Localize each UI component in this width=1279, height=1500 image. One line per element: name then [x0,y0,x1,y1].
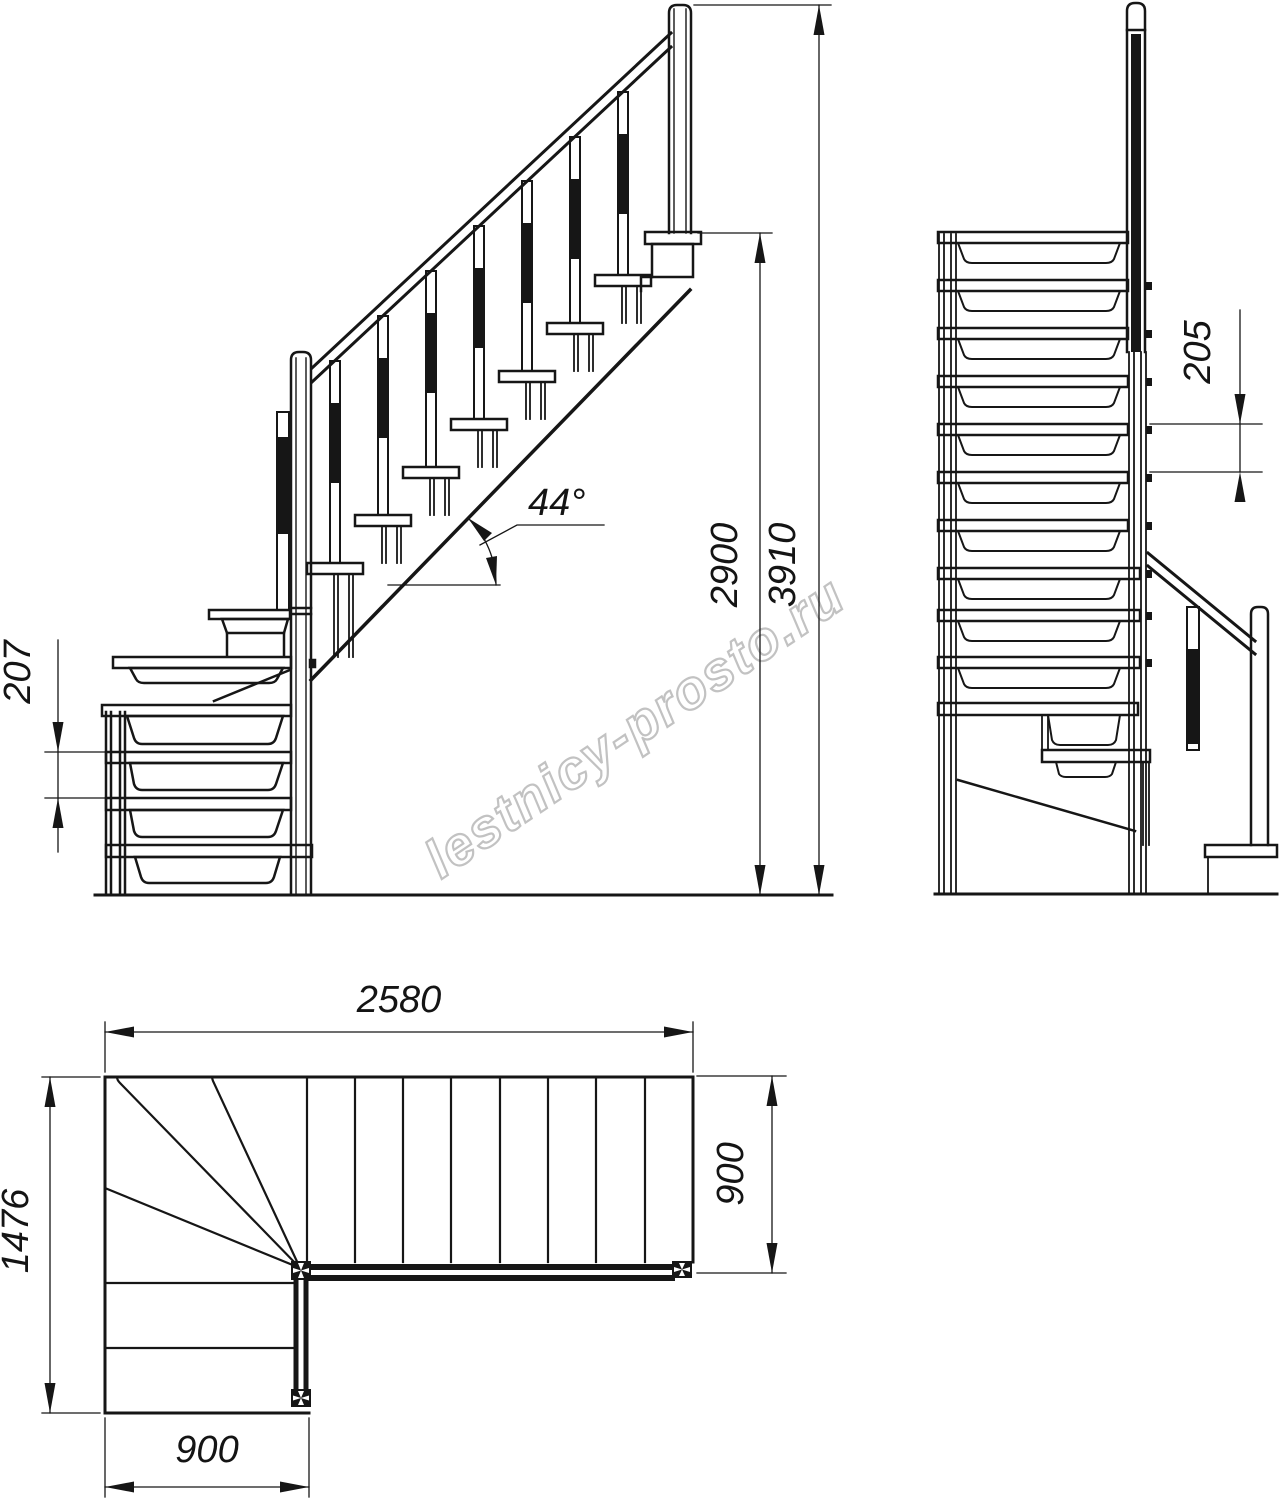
label-total-width: 1476 [0,1188,37,1273]
label-total-run: 2580 [356,979,442,1021]
upper-flight [307,232,701,680]
step-tread [451,419,507,430]
top-post [669,5,691,233]
plan-view [42,1022,786,1497]
label-floor-height: 2900 [704,523,746,609]
staircase-drawing: lestnicy-prosto.ru [0,0,1279,1500]
side-elevation-view [45,5,832,895]
label-riser-front: 205 [1177,319,1219,384]
front-steps [958,715,1277,893]
step-tread [355,515,411,526]
watermark-text: lestnicy-prosto.ru [414,565,856,890]
label-upper-width: 900 [710,1142,752,1205]
step-tread [113,657,291,668]
step-tread [307,563,363,574]
step-tread [209,610,290,619]
plan-treads [307,1077,645,1262]
front-elevation-view [935,3,1277,894]
step-tread [499,371,555,382]
lower-flight [102,610,315,895]
step-tread [106,752,291,763]
blueprint-page: lestnicy-prosto.ru [0,0,1279,1500]
dim-angle [388,518,604,585]
front-trays [958,243,1120,745]
plan-winder-fan [105,1077,300,1348]
label-angle: 44° [528,482,585,524]
step-tread [403,467,459,478]
dim-riser-side [45,640,105,852]
front-right-post [1251,607,1268,845]
dim-total-height [694,5,831,895]
front-post [1127,3,1146,893]
label-riser-side: 207 [0,638,39,704]
step-tread [106,798,291,810]
front-lower-rail [1148,553,1255,654]
newel-post [291,352,311,895]
step-tread [102,705,291,716]
stringer [311,290,690,680]
dim-total-width [42,1077,100,1413]
step-tread [106,845,312,857]
label-lower-width: 900 [175,1429,238,1471]
baluster [277,412,289,610]
label-total-height: 3910 [762,523,804,608]
front-stringer [958,780,1135,831]
front-treads [938,232,1140,715]
plan-post-symbols [291,1261,692,1407]
dim-total-run [105,1022,693,1072]
plan-stringer-bands [296,1267,672,1389]
landing-tread [645,232,701,244]
step-tread [547,323,603,334]
front-baluster [1187,607,1199,750]
